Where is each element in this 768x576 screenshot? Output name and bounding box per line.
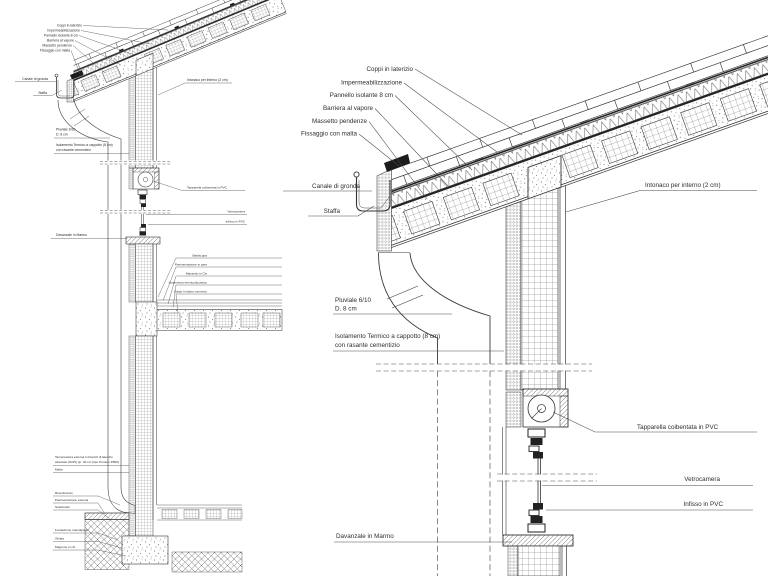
l-label-massetto: Massetto pendenze <box>42 44 72 48</box>
wall-external-insulation <box>506 201 521 390</box>
l-label-infisso: Infisso in PVC <box>226 220 246 224</box>
l-label-fondazione: Fondazione marciapiede <box>55 528 89 532</box>
l-label-sottofondo: Sottofondo <box>55 505 70 509</box>
l-label-staffa: Staffa <box>38 91 47 95</box>
left-foundation-block <box>122 536 168 564</box>
wall-section <box>506 186 566 390</box>
label-vetrocamera: Vetrocamera <box>684 476 720 483</box>
left-shutter-box <box>129 168 159 189</box>
label-massetto-pendenze: Massetto pendenze <box>312 118 367 125</box>
eaves-closure-strip <box>377 169 392 251</box>
window-sill <box>503 535 573 546</box>
l-label-coppi: Coppi in laterizio <box>57 24 82 28</box>
label-davanzale: Davanzale in Marmo <box>336 533 394 540</box>
l-label-canale: Canale di gronda <box>22 77 48 81</box>
left-sidewalk <box>85 513 129 520</box>
wall-blocks <box>521 188 558 390</box>
left-wall-upper <box>129 67 157 168</box>
l-label-pluviale-2: D. 8 cm <box>56 133 68 137</box>
l-label-battiscopa: Battiscopa <box>193 254 208 258</box>
l-label-tapparella: Tapparella coibentata in PVC <box>187 186 228 190</box>
l-label-massetto-cls: Massetto in Cls <box>186 272 208 276</box>
left-floor-ring-beam <box>136 302 157 336</box>
label-pannello-isolante: Pannello isolante 8 cm <box>330 92 393 99</box>
left-break-lines <box>100 161 172 166</box>
l-label-tamponatura-2: alveolato (8x25) sp. 30 cm (tipo Poroton… <box>55 460 119 464</box>
l-label-pluviale-1: Pluviale 6/10 <box>56 128 76 132</box>
label-isolamento-1: Isolamento Termico a cappotto (8 cm) <box>335 333 440 340</box>
l-label-malta: Malta <box>55 468 63 472</box>
left-wall-lower <box>129 336 157 536</box>
technical-drawing-canvas: Coppi in laterizio Impermeabilizzazione … <box>0 0 768 576</box>
left-wall-middle <box>129 244 157 302</box>
label-staffa: Staffa <box>324 208 341 215</box>
wall-below-sill <box>508 546 567 576</box>
l-label-solaio: Solaio in latero-cemento <box>174 290 208 294</box>
l-label-isolamento-acustico: Isolamento termico/acustico <box>169 281 208 285</box>
label-fissaggio-malta: Fissaggio con malta <box>301 131 357 138</box>
label-impermeabilizzazione: Impermeabilizzazione <box>341 80 402 87</box>
l-label-rivestimento: Rivestimento <box>55 491 73 495</box>
l-label-pavimentazione-gres: Pavimentazione in gres <box>175 263 208 267</box>
label-pluviale-2: D. 8 cm <box>335 306 357 313</box>
label-intonaco-interno: Intonaco per interno (2 cm) <box>645 182 721 189</box>
label-infisso: Infisso in PVC <box>683 501 723 508</box>
label-barriera-vapore: Barriera al vapore <box>323 105 374 112</box>
l-label-ghiaia: Ghiaia <box>55 537 64 541</box>
label-coppi: Coppi in laterizio <box>366 66 413 73</box>
label-pluviale-1: Pluviale 6/10 <box>335 297 372 304</box>
l-label-intonaco: Intonaco per interno (2 cm) <box>187 78 228 82</box>
l-label-vetrocamera: Vetrocamera <box>227 210 245 214</box>
l-label-isolamento-2: con rasante cementizio <box>56 148 91 152</box>
section-detail-drawing: Coppi in laterizio Impermeabilizzazione … <box>0 0 768 576</box>
l-label-tamponatura-1: Tamponatura esterna in blocchi di lateri… <box>55 455 113 459</box>
l-label-impermeabilizzazione: Impermeabilizzazione <box>47 29 80 33</box>
l-label-isolamento-1: Isolamento Termico a cappotto (8 cm) <box>56 143 113 147</box>
shutter-box <box>506 389 568 427</box>
l-label-pannello: Pannello isolante 8 cm <box>44 34 78 38</box>
label-isolamento-2: con rasante cementizio <box>335 342 400 349</box>
l-label-fissaggio: Fissaggio con malta <box>40 49 70 53</box>
label-canale-gronda: Canale di gronda <box>312 183 360 190</box>
break-line-upper <box>376 364 592 371</box>
break-line-lower <box>497 474 597 481</box>
label-tapparella: Tapparella coibentata in PVC <box>637 424 719 431</box>
l-label-magrone: Magrone in cls <box>55 545 76 549</box>
l-label-pavimentazione-esterna: Pavimentazione esterna <box>55 498 88 502</box>
l-label-barriera: Barriera al vapore <box>47 39 74 43</box>
l-label-davanzale: Davanzale in Marmo <box>56 233 87 237</box>
